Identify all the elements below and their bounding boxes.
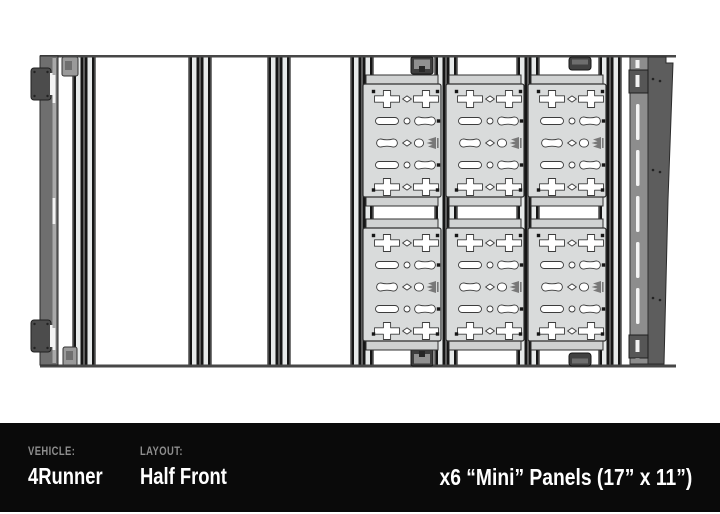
double-slot-hole [580, 161, 601, 169]
panel-screw [372, 234, 375, 237]
circle-hole [569, 262, 575, 268]
left-bar-slot [53, 75, 56, 103]
double-slot-hole [498, 161, 519, 169]
round-hole [414, 283, 423, 291]
logo-base [437, 138, 439, 148]
circle-hole [569, 162, 575, 168]
clamp-bolt [33, 347, 35, 349]
logo-base [520, 138, 522, 148]
right-bar-slot [636, 150, 640, 186]
panel-screw [372, 90, 375, 93]
wedge-bolt [652, 78, 655, 81]
slot-hole [376, 118, 399, 125]
double-slot-hole [580, 305, 601, 313]
panel-screw [437, 263, 440, 266]
double-slot-hole [542, 283, 563, 291]
panel-screw [602, 263, 605, 266]
clamp-slot [636, 75, 640, 87]
panel-screw [372, 332, 375, 335]
double-slot-hole [415, 305, 436, 313]
circle-hole [487, 162, 493, 168]
crossbar-rail [72, 57, 96, 366]
double-slot-hole [580, 261, 601, 269]
double-slot-hole [498, 305, 519, 313]
panel-screw [455, 234, 458, 237]
panel-screw [537, 188, 540, 191]
panel-screw [437, 119, 440, 122]
circle-hole [569, 306, 575, 312]
circle-hole [487, 306, 493, 312]
clamp-slot [50, 325, 53, 347]
vehicle-value: 4Runner [28, 464, 103, 488]
circle-hole [404, 306, 410, 312]
double-slot-hole [415, 261, 436, 269]
mini-panel [446, 219, 524, 350]
clamp-slot [636, 340, 640, 352]
layout-label: LAYOUT: [140, 446, 229, 458]
panel-screw [372, 188, 375, 191]
logo-base [437, 282, 439, 292]
info-bar: VEHICLE: 4Runner LAYOUT: Half Front x6 “… [0, 423, 720, 512]
left-side-fairing [31, 56, 58, 365]
circle-hole [404, 118, 410, 124]
clamp-bolt [46, 95, 48, 97]
panel-screw [602, 307, 605, 310]
panel-screw [537, 234, 540, 237]
left-bar-slot [53, 328, 56, 350]
panel-screw [601, 90, 604, 93]
panel-screw [520, 163, 523, 166]
slot-hole [376, 306, 399, 313]
panel-screw [519, 90, 522, 93]
wedge-bolt [659, 171, 662, 174]
page: VEHICLE: 4Runner LAYOUT: Half Front x6 “… [0, 0, 720, 514]
double-slot-hole [498, 117, 519, 125]
panel-screw [601, 332, 604, 335]
circle-hole [404, 162, 410, 168]
rail-end-tab-notch [66, 351, 73, 360]
panel-screw [437, 307, 440, 310]
panel-spec-text: x6 “Mini” Panels (17” x 11”) [439, 464, 692, 491]
slot-hole [459, 262, 482, 269]
clamp-bolt [33, 95, 35, 97]
panel-screw [520, 119, 523, 122]
rail-end-tab-notch [65, 61, 72, 70]
right-bar-slot [636, 288, 640, 324]
double-slot-hole [415, 161, 436, 169]
round-hole [497, 139, 506, 147]
side-panel-wedge [648, 57, 673, 364]
mini-panel [528, 219, 606, 350]
logo-base [520, 282, 522, 292]
mini-panel [363, 219, 441, 350]
right-bar-slot [636, 60, 640, 68]
panel-screw [520, 307, 523, 310]
clamp-bolt [46, 323, 48, 325]
clamp-bolt [33, 71, 35, 73]
crossbar-rail [188, 57, 212, 366]
panel-screw [455, 188, 458, 191]
panel-screw [537, 332, 540, 335]
slot-hole [459, 118, 482, 125]
clamp-slot [50, 73, 53, 95]
slot-hole [541, 262, 564, 269]
clamp-core [419, 66, 425, 72]
panel-screw [436, 188, 439, 191]
double-slot-hole [580, 117, 601, 125]
double-slot-hole [542, 139, 563, 147]
circle-hole [569, 118, 575, 124]
right-bar-slot [636, 242, 640, 278]
vehicle-field: VEHICLE: 4Runner [28, 446, 121, 488]
clamp-bolt [46, 71, 48, 73]
double-slot-hole [377, 283, 398, 291]
round-hole [497, 283, 506, 291]
circle-hole [404, 262, 410, 268]
panel-screw [436, 234, 439, 237]
roof-rack-diagram [0, 0, 720, 423]
round-hole [579, 139, 588, 147]
layout-value: Half Front [140, 464, 227, 488]
panel-screw [436, 332, 439, 335]
double-slot-hole [415, 117, 436, 125]
circle-hole [487, 118, 493, 124]
panel-screw [602, 163, 605, 166]
double-slot-hole [498, 261, 519, 269]
panel-screw [455, 90, 458, 93]
panel-screw [437, 163, 440, 166]
layout-field: LAYOUT: Half Front [140, 446, 249, 488]
slot-hole [541, 162, 564, 169]
mini-panel [363, 75, 441, 206]
mini-panel [528, 75, 606, 206]
panel-screw [537, 90, 540, 93]
clamp-insert [572, 359, 588, 364]
clamp-bolt [46, 347, 48, 349]
double-slot-hole [460, 283, 481, 291]
double-slot-hole [460, 139, 481, 147]
wedge-bolt [652, 297, 655, 300]
round-hole [414, 139, 423, 147]
panel-screw [455, 332, 458, 335]
panel-screw [601, 234, 604, 237]
slot-hole [541, 306, 564, 313]
wedge-bolt [652, 169, 655, 172]
panel-screw [520, 263, 523, 266]
right-side-rail [629, 57, 673, 364]
wedge-bolt [659, 299, 662, 302]
slot-hole [376, 162, 399, 169]
wedge-bolt [659, 80, 662, 83]
logo-base [602, 138, 604, 148]
right-bar-slot [636, 104, 640, 140]
slot-hole [459, 162, 482, 169]
round-hole [579, 283, 588, 291]
panel-screw [519, 332, 522, 335]
slot-hole [459, 306, 482, 313]
clamp-insert [572, 60, 588, 65]
double-slot-hole [377, 139, 398, 147]
mini-panel [446, 75, 524, 206]
panel-screw [436, 90, 439, 93]
slot-hole [541, 118, 564, 125]
panel-screw [601, 188, 604, 191]
panel-screw [519, 234, 522, 237]
right-bar-slot [636, 196, 640, 232]
panel-screw [519, 188, 522, 191]
circle-hole [487, 262, 493, 268]
slot-hole [376, 262, 399, 269]
clamp-core [419, 351, 425, 357]
panel-screw [602, 119, 605, 122]
vehicle-label: VEHICLE: [28, 446, 105, 458]
left-bar-slot [53, 198, 56, 224]
clamp-bolt [33, 323, 35, 325]
crossbar-rail [267, 57, 291, 366]
accessory-panels [363, 75, 606, 350]
logo-base [602, 282, 604, 292]
